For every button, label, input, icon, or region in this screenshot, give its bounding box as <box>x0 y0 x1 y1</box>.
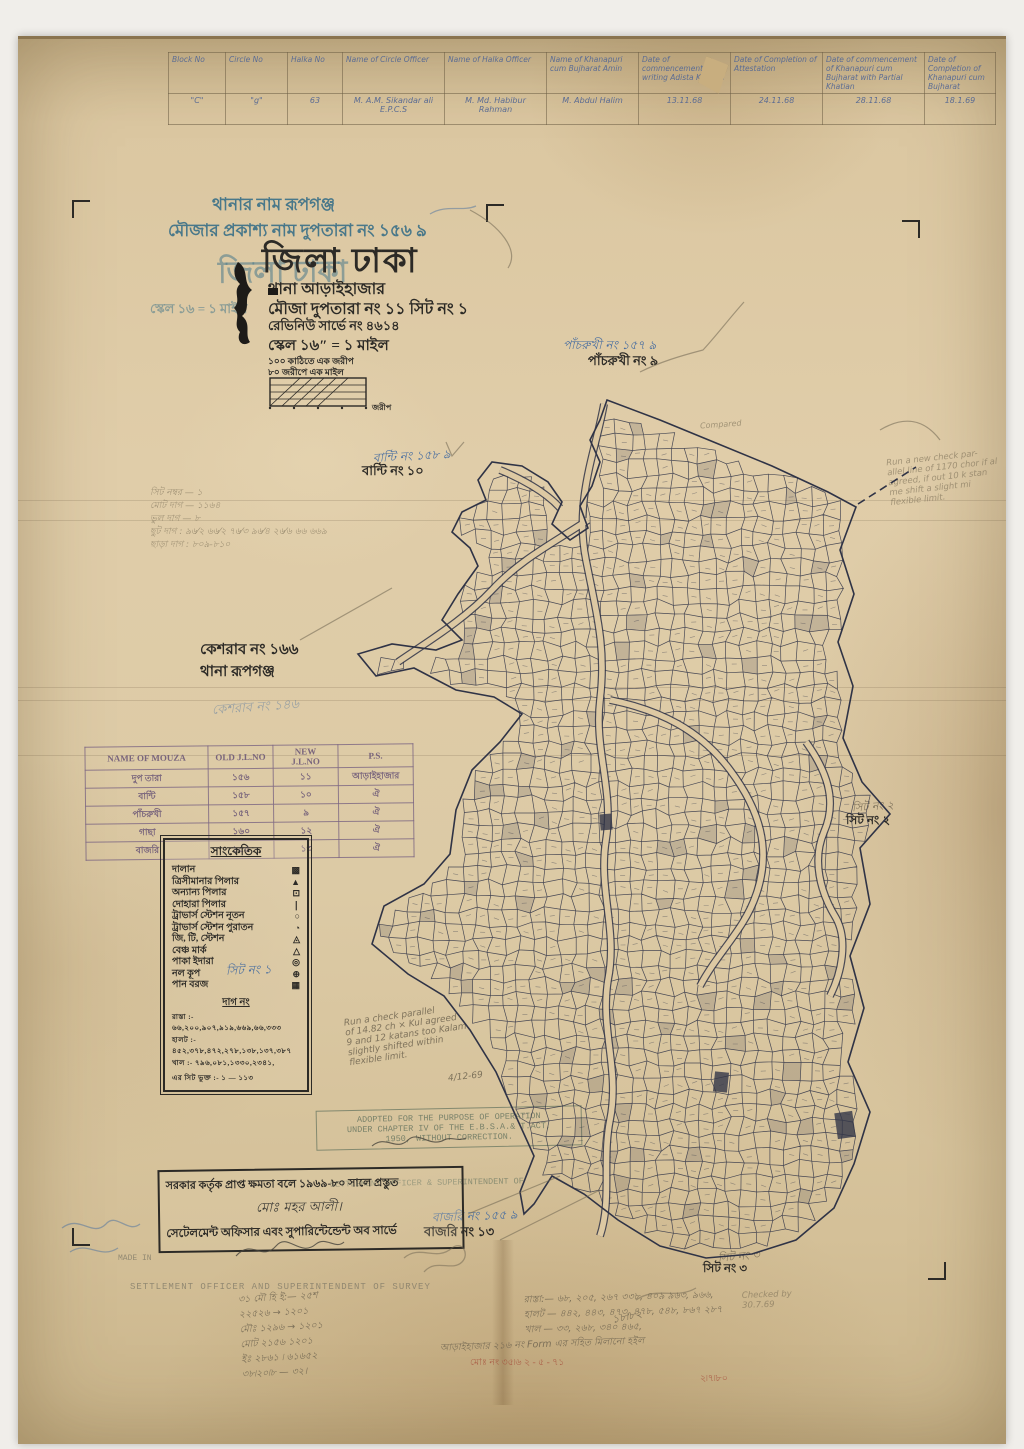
dag-line-khal: খাল :- ৭৯৬,০৮১,১৩৩০,২৩৪১, <box>165 1058 307 1070</box>
legend-item: দালান▩ <box>165 865 307 877</box>
cell: ১০ <box>273 786 338 805</box>
legend-label: দালান <box>172 865 195 877</box>
dag-text: এর সিট ভুক্ত :- ১ — ১১৩ <box>172 1073 253 1085</box>
col-header: P.S. <box>338 744 413 768</box>
col-header: Date of commencement of Khanapuri cum Bu… <box>823 53 925 94</box>
sheet2-black-label: সিট নং ২ <box>846 812 890 832</box>
legend-item: ট্রাভার্স স্টেশন নূতন○ <box>165 911 307 923</box>
legend-label: পাকা ইদারা <box>172 957 214 969</box>
pencil-summary-list: সিট নম্বর — ১ মোট দাগ — ১১৬৪ ভুল দাগ — ৮… <box>150 487 327 552</box>
col-header: Name of Halka Officer <box>445 53 547 94</box>
tri-junction-pillar-icon: ▲ <box>291 877 300 889</box>
building-icon: ▩ <box>291 865 300 877</box>
made-in-stamp: MADE IN <box>118 1254 152 1263</box>
dag-line-halot: হালট :- ৪৫২,৩৭৮,৪৭২,২৭৮,১৩৮,১৩৭,৩৮৭ <box>165 1035 307 1058</box>
preparation-box-stamp: সরকার কর্তৃক প্রাপ্ত ক্ষমতা বলে ১৯৬৯-৮০ … <box>157 1166 464 1253</box>
legend-label: ত্রিসীমানার পিলার <box>172 877 239 889</box>
cell: ১১ <box>273 768 338 787</box>
gt-station-icon: ◬ <box>293 934 300 946</box>
pachrukhi-black-label: পাঁচরুখী নং ৯ <box>588 352 658 373</box>
crop-mark-bottom-right <box>928 1262 946 1280</box>
scan-rule-line <box>18 687 1006 688</box>
scale-bar-unit-label: জরীপ <box>371 401 392 412</box>
col-header: Block No <box>169 53 226 94</box>
legend-item: দোহারা পিলার❘ <box>165 900 307 912</box>
bottom-left-pencil-list: ৩১ মৌ হি ই:— ২৫শ ২২৫২৬ → ১২০১ মৌঃ ১২৯৬ →… <box>238 1283 442 1383</box>
box-line-1: সরকার কর্তৃক প্রাপ্ত ক্ষমতা বলে ১৯৬৯-৮০ … <box>166 1173 456 1196</box>
legend-label: অন্যান্য পিলার <box>172 888 226 900</box>
cell-amin: M. Abdul Halim <box>547 94 639 125</box>
mouza-table-header: NAME OF MOUZA OLD J.L.NO NEW J.L.NO P.S. <box>85 744 413 770</box>
cell: ঐ <box>338 785 413 804</box>
cell: বান্টি <box>85 787 208 806</box>
scale-ghost: স্কেল ১৬ = ১ মাইল <box>150 300 248 321</box>
cell: ১৫৮ <box>208 786 273 805</box>
cell: ঐ <box>339 821 414 840</box>
dag-line-sheet: এর সিট ভুক্ত :- ১ — ১১৩ <box>165 1073 307 1085</box>
legend-label: ট্রাভার্স স্টেশন নূতন <box>172 911 245 923</box>
pencil-list-item: ভুল দাগ — ৮ <box>150 513 327 526</box>
dag-text: খাল :- ৭৯৬,০৮১,১৩৩০,২৩৪১, <box>172 1058 275 1070</box>
legend-label: দোহারা পিলার <box>172 900 226 912</box>
legend-item: ত্রিসীমানার পিলার▲ <box>165 877 307 889</box>
masonry-well-icon: ◎ <box>292 957 300 969</box>
legend-title: সাংকেতিক <box>165 843 307 863</box>
banti-black-label: বান্টি নং ১০ <box>362 462 424 483</box>
register-header-row: Block No Circle No Halka No Name of Circ… <box>169 53 996 94</box>
legend-label: জি, টি, স্টেশন <box>172 934 224 946</box>
col-header: NAME OF MOUZA <box>85 746 208 770</box>
cell-date3: 28.11.68 <box>823 94 925 125</box>
tube-well-icon: ⊕ <box>292 969 300 981</box>
cell: ঐ <box>339 803 414 822</box>
dag-line-rasta: রাস্তা :- ৬৬,২০০,৯০৭,৯১৯,৬৬৯,৬৬,৩৩৩ <box>165 1012 307 1035</box>
legend-item: বেঞ্চ মার্ক△ <box>165 946 307 958</box>
legend-item: অন্যান্য পিলার⊡ <box>165 888 307 900</box>
cell-halka-no: 63 <box>288 94 343 125</box>
bench-mark-icon: △ <box>293 946 300 958</box>
legend-label: ট্রাভার্স স্টেশন পুরাতন <box>172 923 253 935</box>
pencil-list-item: মোট দাগ — ১১৬৪ <box>150 500 327 513</box>
box-signature: মোঃ মহর আলী। <box>256 1196 456 1220</box>
cell: ঐ <box>339 839 414 858</box>
survey-register-table: Block No Circle No Halka No Name of Circ… <box>168 52 996 125</box>
double-pillar-icon: ❘ <box>292 900 300 912</box>
legend-item: ট্রাভার্স স্টেশন পুরাতন◔ <box>165 923 307 935</box>
dag-heading: দাগ নং <box>165 995 307 1012</box>
col-header: Date of Completion of Attestation <box>731 53 823 94</box>
traverse-station-old-icon: ◔ <box>295 923 300 935</box>
traverse-station-new-icon: ○ <box>295 911 300 923</box>
crop-mark-top-mid <box>486 204 504 222</box>
sheet3-black-label: সিট নং ৩ <box>703 1260 747 1280</box>
other-pillar-icon: ⊡ <box>292 888 300 900</box>
col-header: Circle No <box>226 53 288 94</box>
cell-block-no: "C" <box>169 94 226 125</box>
dag-text: রাস্তা :- ৬৬,২০০,৯০৭,৯১৯,৬৬৯,৬৬,৩৩৩ <box>172 1012 300 1035</box>
cell-halka-officer: M. Md. Habibur Rahman <box>445 94 547 125</box>
crop-mark-bottom-left <box>72 1228 90 1246</box>
cell-circle-officer: M. A.M. Sikandar ali E.P.C.S <box>343 94 445 125</box>
cell: ১৫৬ <box>208 768 273 787</box>
cell-date4: 18.1.69 <box>925 94 996 125</box>
col-header: Name of Circle Officer <box>343 53 445 94</box>
col-header: Name of Khanapuri cum Bujharat Amin <box>547 53 639 94</box>
cell: ৯ <box>274 804 339 823</box>
red-pencil-note: মোঃ নং ৩৫৷৬ ২ - ৫ - ৭১ <box>470 1356 564 1371</box>
box-line-2: সেটেলমেন্ট অফিসার এবং সুপারিন্টেন্ডেন্ট … <box>166 1221 456 1244</box>
red-pencil-date: ২৷৭৷৮০ <box>700 1372 728 1387</box>
col-header: Date of Completion of Khanapuri cum Bujh… <box>925 53 996 94</box>
legend-label: পান বরজ <box>172 980 208 992</box>
legend-overlay-note: সিট নং ১ <box>226 961 272 983</box>
betel-garden-icon: ▦ <box>291 980 300 992</box>
crop-mark-top-right <box>902 220 920 238</box>
cell: দুপ তারা <box>85 769 208 788</box>
crop-mark-top-left <box>72 200 90 218</box>
col-header: Halka No <box>288 53 343 94</box>
legend-label: বেঞ্চ মার্ক <box>172 946 207 958</box>
kesharab-label-line2: থানা রূপগঞ্জ <box>200 660 275 685</box>
register-value-row: "C" "g" 63 M. A.M. Sikandar ali E.P.C.S … <box>169 94 996 125</box>
col-header: NEW J.L.NO <box>273 745 338 769</box>
pencil-list-item: ছুট দাগ : ৯৬⁄২ ৬৬⁄২ ৭৬⁄৩ ৯৬⁄৪ ২৬⁄৬ ৬৬ ৬৬… <box>150 526 327 539</box>
pencil-list-item: ছাড়া দাগ : ৮০৯-৮১০ <box>150 539 327 552</box>
col-header: OLD J.L.NO <box>208 745 273 769</box>
diagonal-scale-bar: জরীপ <box>262 376 392 416</box>
bottom-right-pencil-list: রাস্তা:— ৬৮, ২০৫, ২৬৭ ৩৩৮, ৪০৯ ৯৬৩, ৯৬৬,… <box>523 1287 784 1339</box>
fold-crease <box>492 1240 514 1405</box>
cell: ১৫৭ <box>209 804 274 823</box>
adopted-stamp: ADOPTED FOR THE PURPOSE OF OPERATION UND… <box>316 1105 583 1151</box>
legend-item: জি, টি, স্টেশন◬ <box>165 934 307 946</box>
cell: আড়াইহাজার <box>338 767 413 786</box>
scan-rule-line <box>18 700 1006 701</box>
pencil-list-item: সিট নম্বর — ১ <box>150 487 327 500</box>
cell-date2: 24.11.68 <box>731 94 823 125</box>
cell-circle-no: "g" <box>226 94 288 125</box>
cell-date1: 13.11.68 <box>639 94 731 125</box>
cell: পাঁচরুখী <box>86 805 209 824</box>
thana-name-line: থানার নাম রূপগঞ্জ <box>212 192 335 220</box>
dag-text: হালট :- ৪৫২,৩৭৮,৪৭২,২৭৮,১৩৮,১৩৭,৩৮৭ <box>172 1035 300 1058</box>
legend-label: নল কূপ <box>172 969 200 981</box>
